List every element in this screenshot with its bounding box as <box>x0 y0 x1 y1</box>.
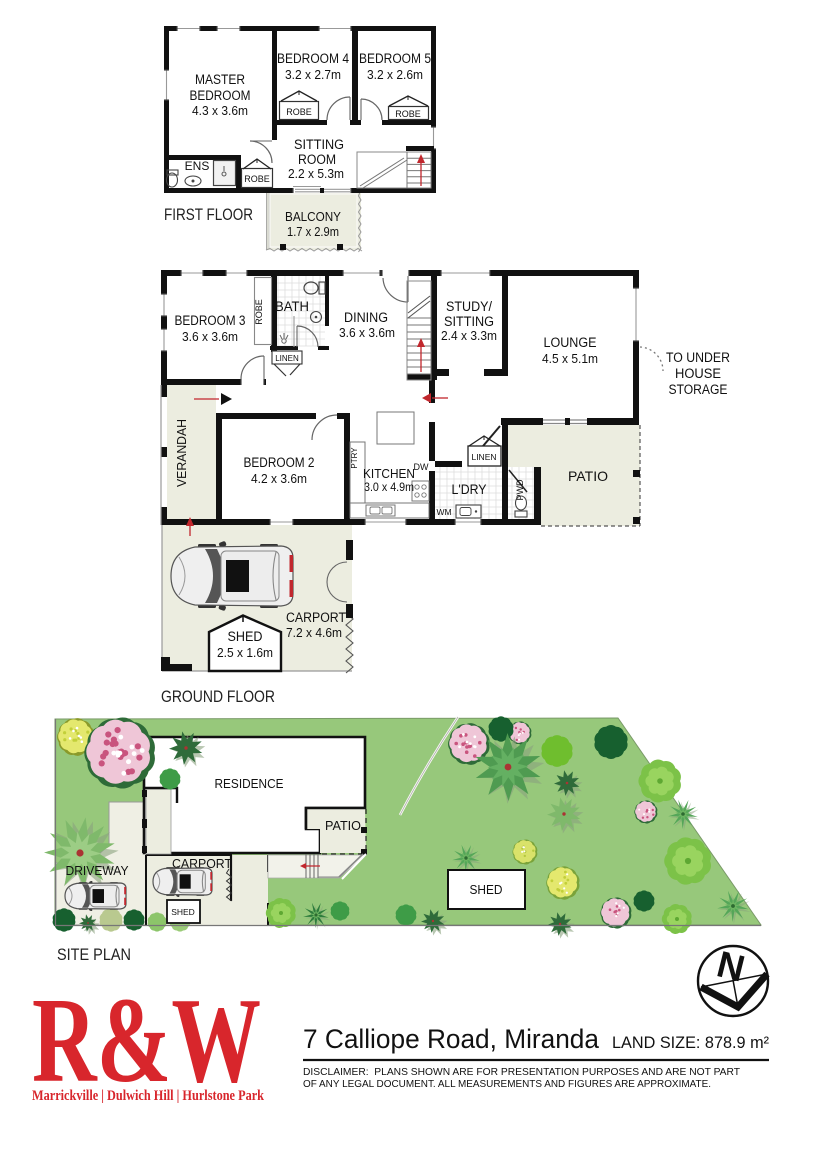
svg-text:Marrickville | Dulwich Hill |: Marrickville | Dulwich Hill | Hurlstone … <box>32 1088 265 1104</box>
svg-text:1.7 x 2.9m: 1.7 x 2.9m <box>287 225 339 239</box>
svg-text:RESIDENCE: RESIDENCE <box>215 777 284 791</box>
svg-text:SITTING: SITTING <box>444 314 494 329</box>
svg-text:PTRY: PTRY <box>350 447 359 469</box>
svg-text:SITE PLAN: SITE PLAN <box>57 946 131 964</box>
svg-text:KITCHEN: KITCHEN <box>363 467 415 481</box>
svg-text:4.3 x 3.6m: 4.3 x 3.6m <box>192 103 248 118</box>
svg-text:3.2 x 2.7m: 3.2 x 2.7m <box>285 67 341 82</box>
svg-text:2.5 x 1.6m: 2.5 x 1.6m <box>217 645 273 660</box>
svg-text:HOUSE: HOUSE <box>675 366 721 381</box>
svg-text:STUDY/: STUDY/ <box>446 299 492 314</box>
svg-text:4.5 x 5.1m: 4.5 x 5.1m <box>542 351 598 366</box>
svg-text:LINEN: LINEN <box>275 354 299 363</box>
svg-text:DRIVEWAY: DRIVEWAY <box>66 864 130 878</box>
svg-text:2.4 x 3.3m: 2.4 x 3.3m <box>441 328 497 343</box>
svg-text:PATIO: PATIO <box>325 819 361 833</box>
svg-text:3.6 x 3.6m: 3.6 x 3.6m <box>339 325 395 340</box>
svg-text:LINEN: LINEN <box>471 452 496 462</box>
svg-text:ROBE: ROBE <box>395 109 421 119</box>
svg-text:BEDROOM 4: BEDROOM 4 <box>277 51 349 66</box>
svg-text:ROBE: ROBE <box>244 174 270 184</box>
svg-text:4.2 x 3.6m: 4.2 x 3.6m <box>251 471 307 486</box>
svg-text:GROUND FLOOR: GROUND FLOOR <box>161 688 275 706</box>
svg-text:ENS: ENS <box>185 159 210 173</box>
svg-text:3.0 x 4.9m: 3.0 x 4.9m <box>364 480 414 494</box>
svg-text:ROBE: ROBE <box>254 299 264 325</box>
svg-text:3.6 x 3.6m: 3.6 x 3.6m <box>182 329 238 344</box>
svg-text:TO UNDER: TO UNDER <box>666 350 730 365</box>
svg-text:FIRST FLOOR: FIRST FLOOR <box>164 206 253 224</box>
svg-text:L'DRY: L'DRY <box>452 481 488 497</box>
svg-text:3.2 x 2.6m: 3.2 x 2.6m <box>367 67 423 82</box>
svg-text:DISCLAIMER: PLANS SHOWN ARE F: DISCLAIMER: PLANS SHOWN ARE FOR PRESENTA… <box>303 1066 741 1078</box>
svg-text:LAND SIZE: 878.9 m²: LAND SIZE: 878.9 m² <box>612 1033 769 1052</box>
svg-text:DINING: DINING <box>344 310 388 325</box>
svg-text:BEDROOM 2: BEDROOM 2 <box>244 455 315 470</box>
svg-text:SHED: SHED <box>470 882 503 897</box>
svg-text:SHED: SHED <box>228 629 263 644</box>
svg-text:PWD: PWD <box>515 479 525 500</box>
svg-text:SITTING: SITTING <box>294 137 344 152</box>
svg-text:CARPORT: CARPORT <box>286 610 346 625</box>
svg-text:LOUNGE: LOUNGE <box>544 335 597 350</box>
svg-text:2.2 x 5.3m: 2.2 x 5.3m <box>288 166 344 181</box>
svg-text:MASTER: MASTER <box>195 72 245 87</box>
svg-text:OF ANY LEGAL DOCUMENT. ALL MEA: OF ANY LEGAL DOCUMENT. ALL MEASUREMENTS … <box>303 1078 711 1090</box>
svg-text:7 Calliope Road, Miranda: 7 Calliope Road, Miranda <box>303 1024 600 1054</box>
svg-text:7.2 x 4.6m: 7.2 x 4.6m <box>286 625 342 640</box>
svg-text:BEDROOM 3: BEDROOM 3 <box>175 313 246 328</box>
svg-text:BATH: BATH <box>275 299 309 314</box>
svg-text:BEDROOM: BEDROOM <box>190 88 251 103</box>
svg-text:PATIO: PATIO <box>568 468 608 484</box>
svg-text:STORAGE: STORAGE <box>669 382 728 397</box>
svg-text:ROOM: ROOM <box>298 152 336 167</box>
svg-text:VERANDAH: VERANDAH <box>175 419 189 487</box>
svg-text:BEDROOM 5: BEDROOM 5 <box>359 51 431 66</box>
svg-text:ROBE: ROBE <box>286 107 312 117</box>
svg-text:DW: DW <box>414 462 429 472</box>
svg-text:BALCONY: BALCONY <box>285 209 341 224</box>
svg-text:SHED: SHED <box>171 907 195 917</box>
svg-text:WM: WM <box>436 507 451 517</box>
